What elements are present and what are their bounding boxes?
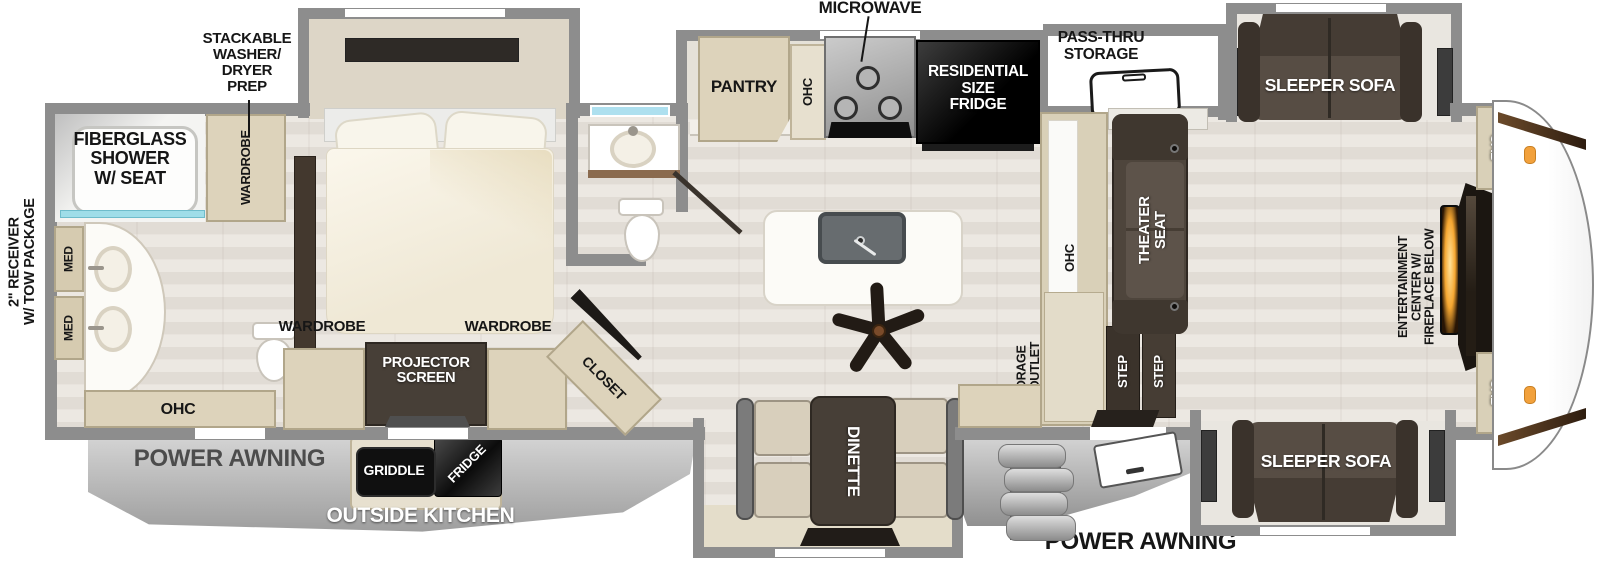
sofa-slide-bottom-window — [1260, 527, 1370, 535]
bed-wardrobe-left — [283, 348, 365, 430]
sleeper-sofa-top-split — [1328, 18, 1331, 118]
dinette-window-dark — [800, 528, 900, 546]
theater-seat-label: THEATER SEAT — [1128, 172, 1178, 288]
microwave-label: MICROWAVE — [800, 0, 940, 18]
sleeper-sofa-bottom-split — [1322, 424, 1325, 520]
door-side-cabinet — [958, 384, 1042, 428]
sofa-slide-bottom-side-window-right — [1429, 430, 1445, 502]
power-awning-left-label: POWER AWNING — [122, 444, 337, 474]
step-1-label: STEP — [1106, 328, 1140, 416]
bedroom-slide-interior — [309, 19, 569, 119]
bath-wardrobe-label: WARDROBE — [206, 116, 286, 220]
dinette-label: DINETTE — [826, 404, 880, 518]
fireplace — [1440, 205, 1460, 335]
cooktop-burner — [834, 96, 858, 120]
dinette-chair-seat — [754, 400, 812, 456]
floorplan-canvas: POWER AWNING FRIDGE GRIDDLE OUTSIDE KITC… — [0, 0, 1600, 570]
bed-duvet-fold — [430, 150, 552, 270]
bedroom-bottom-window — [388, 428, 468, 439]
dinette-chair-seat — [754, 462, 812, 518]
projector-screen-label: PROJECTOR SCREEN — [370, 352, 482, 390]
med-lower-label: MED — [54, 296, 84, 360]
midbath-faucet — [628, 126, 638, 136]
sleeper-sofa-bottom-label: SLEEPER SOFA — [1238, 450, 1414, 472]
dinette-chair-back — [736, 398, 754, 520]
bed-wardrobe-left-label: WARDROBE — [266, 318, 378, 336]
bottom-wall-rear — [45, 427, 705, 440]
dinette-chair-back — [890, 398, 948, 454]
theater-cupholder-icon — [1170, 302, 1179, 311]
entry-step-2 — [1004, 468, 1074, 492]
dinette-slide-window — [775, 549, 885, 557]
entertainment-center-panel-sheen — [1466, 196, 1476, 356]
stackable-prep-label: STACKABLE WASHER/ DRYER PREP — [188, 24, 306, 102]
entertainment-label: ENTERTAINMENT CENTER W/ FIREPLACE BELOW — [1392, 188, 1442, 386]
projector-screen-strip — [385, 416, 470, 427]
oven-vent — [828, 122, 912, 138]
storage-outlet-cabinet — [1044, 292, 1104, 422]
theater-seat-armrest-top — [1112, 114, 1188, 160]
kitchen-ohc-label: OHC — [790, 48, 826, 136]
sofa-slide-top-window — [1276, 4, 1386, 12]
cooktop-burner — [856, 66, 880, 90]
bed-wardrobe-right-label: WARDROBE — [452, 318, 564, 336]
midbath-wall-left — [566, 116, 578, 266]
bottom-wall-door-left — [955, 427, 1090, 440]
bedroom-slide-wall-right — [569, 8, 580, 118]
sleeper-sofa-top-armrest-left — [1238, 22, 1260, 122]
cooktop-burner — [878, 96, 902, 120]
entry-step-1 — [998, 444, 1066, 468]
residential-fridge-label: RESIDENTIAL SIZE FRIDGE — [920, 56, 1036, 122]
pantry-label: PANTRY — [698, 76, 790, 98]
sofa-slide-top-wall-left — [1226, 3, 1237, 122]
step-2-label: STEP — [1142, 328, 1176, 416]
theater-cupholder-icon — [1170, 144, 1179, 153]
living-ohc-label: OHC — [1054, 222, 1086, 294]
vanity-faucet-1 — [88, 266, 104, 270]
entry-step-3 — [1000, 492, 1068, 516]
entry-step-4 — [1006, 515, 1076, 541]
bottom-wall-window-bath — [195, 428, 265, 439]
vanity-faucet-2 — [88, 326, 104, 330]
bedroom-slide-window — [345, 9, 505, 17]
residential-fridge-base — [922, 144, 1034, 151]
outside-kitchen-label: OUTSIDE KITCHEN — [318, 503, 523, 529]
midbath-vanity-edge — [588, 170, 680, 178]
dinette-chair-seat — [890, 462, 948, 518]
bath-ohc-label: OHC — [140, 399, 216, 421]
med-upper-label: MED — [54, 226, 84, 292]
sleeper-sofa-top-armrest-right — [1400, 22, 1422, 122]
griddle-label: GRIDDLE — [356, 448, 432, 492]
stackable-prep-leader-line — [248, 100, 250, 136]
pass-thru-storage-label: PASS-THRU STORAGE — [1036, 26, 1166, 68]
sofa-slide-bottom-side-window-left — [1201, 430, 1217, 502]
shower-glass — [60, 210, 205, 218]
receiver-label: 2" RECEIVER W/ TOW PACKAGE — [0, 168, 46, 356]
fiberglass-shower-label: FIBERGLASS SHOWER W/ SEAT — [56, 126, 204, 192]
front-cap-handle-icon — [1524, 386, 1536, 404]
ceiling-fan-hub — [872, 324, 886, 338]
front-cap-handle-icon — [1524, 146, 1536, 164]
bedroom-headboard-window — [345, 38, 519, 62]
door-landing — [1091, 410, 1160, 428]
pass-thru-hatch-handle-icon — [1122, 73, 1146, 81]
midbath-window — [590, 105, 670, 117]
sleeper-sofa-top-label: SLEEPER SOFA — [1242, 74, 1418, 96]
